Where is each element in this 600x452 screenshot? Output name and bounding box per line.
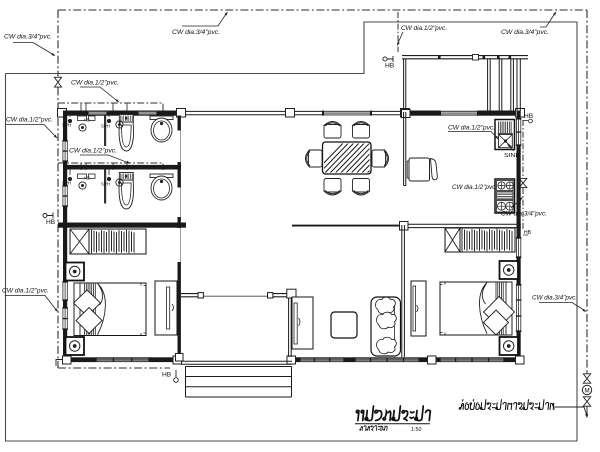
svg-text:CW dia.1/2"pvc.: CW dia.1/2"pvc. (401, 25, 447, 32)
svg-text:HB: HB (46, 219, 56, 226)
svg-text:CW dia.1/2"pvc.: CW dia.1/2"pvc. (69, 148, 117, 155)
svg-text:SPH: SPH (62, 181, 71, 186)
svg-text:CW dia.1/2"pvc.: CW dia.1/2"pvc. (448, 125, 495, 132)
svg-text:CW dia.3/4"pvc.: CW dia.3/4"pvc. (172, 29, 220, 36)
svg-text:SPH: SPH (101, 182, 110, 187)
svg-text:CW dia.1/2"pvc.: CW dia.1/2"pvc. (452, 184, 497, 191)
svg-text:HB: HB (162, 372, 172, 379)
svg-text:CW dia.1/2"pvc.: CW dia.1/2"pvc. (2, 288, 49, 295)
svg-text:CW dia.3/4"pvc.: CW dia.3/4"pvc. (501, 29, 549, 36)
svg-text:SPH: SPH (101, 124, 110, 129)
svg-text:CW dia.1/2"pvc.: CW dia.1/2"pvc. (6, 117, 53, 124)
svg-text:SINK: SINK (504, 153, 520, 159)
svg-text:1:50: 1:50 (411, 427, 422, 433)
svg-text:CW dia.3/4"pvc.: CW dia.3/4"pvc. (532, 295, 577, 302)
svg-text:HB: HB (385, 63, 395, 70)
svg-text:M: M (584, 388, 589, 395)
svg-text:HB: HB (524, 113, 534, 120)
svg-text:CW dia.3/4"pvc.: CW dia.3/4"pvc. (4, 34, 52, 41)
svg-text:CW dia.1/2"pvc.: CW dia.1/2"pvc. (71, 80, 119, 87)
svg-text:CW dia.3/4"pvc.: CW dia.3/4"pvc. (501, 211, 547, 218)
svg-text:SPH: SPH (62, 123, 71, 128)
